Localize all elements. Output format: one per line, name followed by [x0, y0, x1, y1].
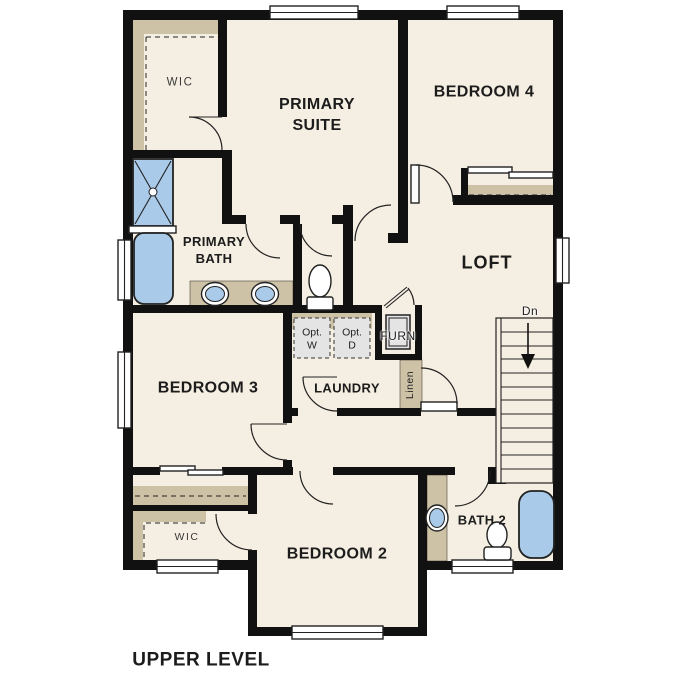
wall-segment	[398, 10, 408, 233]
wall-segment	[418, 467, 427, 636]
window	[118, 352, 131, 428]
window	[447, 6, 519, 19]
door-opening	[300, 215, 332, 224]
wall-segment	[553, 10, 563, 570]
wall-segment	[248, 550, 257, 562]
wall-segment	[283, 313, 292, 423]
wall-segment	[123, 305, 375, 313]
sink	[256, 287, 275, 302]
plan-title: UPPER LEVEL	[132, 649, 269, 674]
label-primary-bath: PRIMARY BATH	[183, 234, 245, 268]
label-laundry: LAUNDRY	[314, 381, 380, 398]
label-bedroom4: BEDROOM 4	[434, 83, 535, 104]
label-furnace: FURN	[380, 329, 415, 345]
label-optional-dryer: Opt. D	[342, 326, 362, 351]
stairs	[496, 318, 553, 483]
primary-bathtub	[134, 233, 173, 304]
sink	[206, 287, 225, 302]
wall-segment	[248, 560, 257, 636]
wall-segment	[280, 215, 300, 224]
label-primary-suite: PRIMARY SUITE	[279, 95, 355, 137]
wall-segment	[457, 408, 496, 416]
window	[556, 238, 569, 283]
primary-toilet	[307, 265, 333, 310]
window	[270, 6, 358, 19]
primary-wic-shelf-side	[133, 20, 144, 152]
door-opening	[298, 408, 337, 416]
window	[292, 626, 383, 639]
wall-segment	[123, 505, 257, 511]
wall-segment	[343, 205, 353, 305]
wall-segment	[388, 233, 408, 243]
wall-segment	[293, 224, 302, 305]
door-opening	[300, 467, 333, 475]
wall-segment	[222, 215, 246, 224]
wall-segment	[337, 408, 421, 416]
label-bath2: BATH 2	[458, 513, 506, 530]
bath2-sink	[426, 505, 448, 531]
primary-wic-shelf	[133, 20, 225, 34]
door-opening	[283, 423, 292, 460]
wall-segment	[123, 150, 227, 158]
wall-segment	[453, 195, 563, 205]
closet-door-panel	[188, 470, 223, 475]
window	[118, 240, 131, 300]
wall-segment	[333, 467, 418, 475]
floor-plan: WIC PRIMARY SUITE BEDROOM 4 PRIMARY BATH…	[0, 0, 687, 687]
wall-segment	[418, 467, 455, 475]
label-loft: LOFT	[462, 251, 513, 274]
door-opening	[246, 215, 280, 224]
bedroom2-wic-shelf-side	[132, 511, 143, 560]
label-bedroom2-wic: WIC	[175, 531, 200, 545]
label-primary-wic: WIC	[167, 76, 194, 91]
wall-segment	[461, 168, 468, 205]
wall-segment	[222, 467, 293, 475]
label-stairs-down: Dn	[522, 304, 538, 320]
label-optional-washer: Opt. W	[302, 326, 322, 351]
closet-door-panel	[468, 167, 512, 173]
window	[157, 560, 218, 573]
door-leaf	[411, 165, 419, 203]
wall-segment	[218, 20, 227, 117]
wall-segment	[123, 467, 160, 475]
window	[452, 560, 513, 573]
label-bedroom2: BEDROOM 2	[287, 545, 388, 566]
wall-segment	[415, 305, 422, 360]
wall-segment	[222, 150, 232, 224]
label-linen: Linen	[404, 371, 418, 399]
bath2-bathtub	[519, 491, 554, 558]
door-opening	[218, 117, 227, 150]
primary-shower	[129, 159, 176, 233]
door-opening	[248, 514, 257, 550]
wall-segment	[375, 354, 422, 360]
door-opening	[455, 467, 488, 475]
closet-door-panel	[509, 172, 553, 178]
label-bedroom3: BEDROOM 3	[158, 379, 259, 400]
bedroom2-wic-shelf	[132, 511, 206, 522]
door-leaf	[421, 402, 457, 411]
